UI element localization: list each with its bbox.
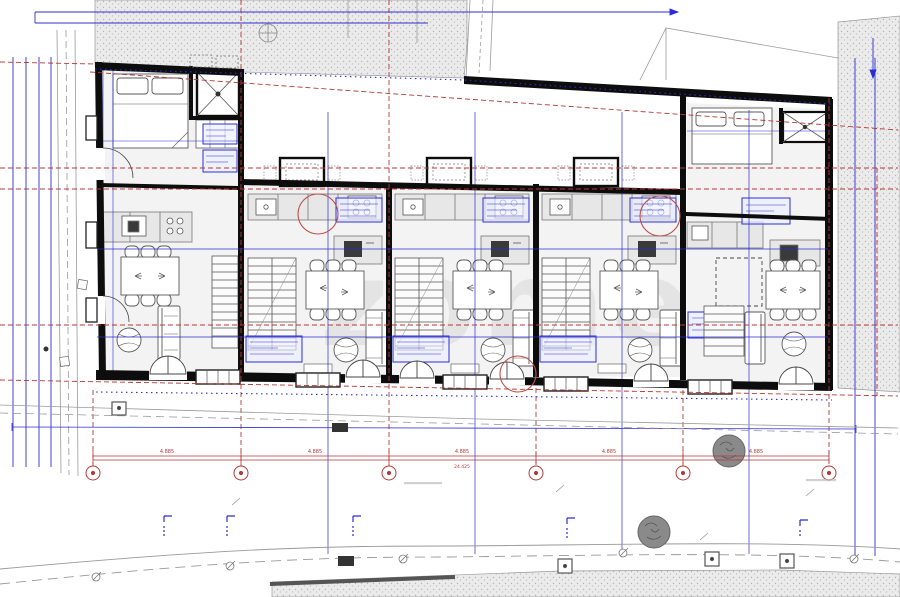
wall-unit1-bedroom2 [189,116,240,120]
dim-bay-5: 4.885 [749,449,763,455]
ottoman [117,328,141,352]
pavement-hatch-bottom [270,570,900,597]
ottoman [782,332,806,356]
stairs [212,256,238,348]
shower [197,72,239,116]
wall-top-main [464,76,832,105]
neighbor-building-hatch-right [838,16,900,392]
dim-total: 24.425 [454,464,470,470]
sofa [158,306,180,360]
shower [783,112,828,142]
level-markers [164,516,808,538]
floor-plan-canvas: zome [0,0,900,597]
sofa [745,312,765,364]
wall-unit5-shower [779,108,783,144]
bed [692,108,772,164]
small-print [404,479,836,484]
wall-party-3 [533,184,539,377]
dim-bay-2: 4.885 [308,449,322,455]
utility-box [338,556,354,566]
kitchen-counter [100,212,192,242]
dining-table [766,260,820,320]
gate-marker [332,423,348,432]
dining-table [121,246,179,306]
stairs [704,306,744,356]
survey-square-marker [77,279,87,289]
dim-bay-4: 4.885 [602,449,616,455]
survey-point [44,347,49,352]
wall-unit1-bedroom [189,66,193,120]
road-edge [0,544,900,569]
road [0,405,900,584]
floor-plan-page: zome [0,0,900,597]
bed [113,74,188,148]
tree-symbol [638,435,745,548]
left-boundary-lines [13,30,88,476]
dim-bay-3: 4.885 [455,449,469,455]
sidewalk-line [0,405,898,428]
dim-bay-1: 4.885 [160,449,174,455]
survey-square-marker [59,356,69,366]
